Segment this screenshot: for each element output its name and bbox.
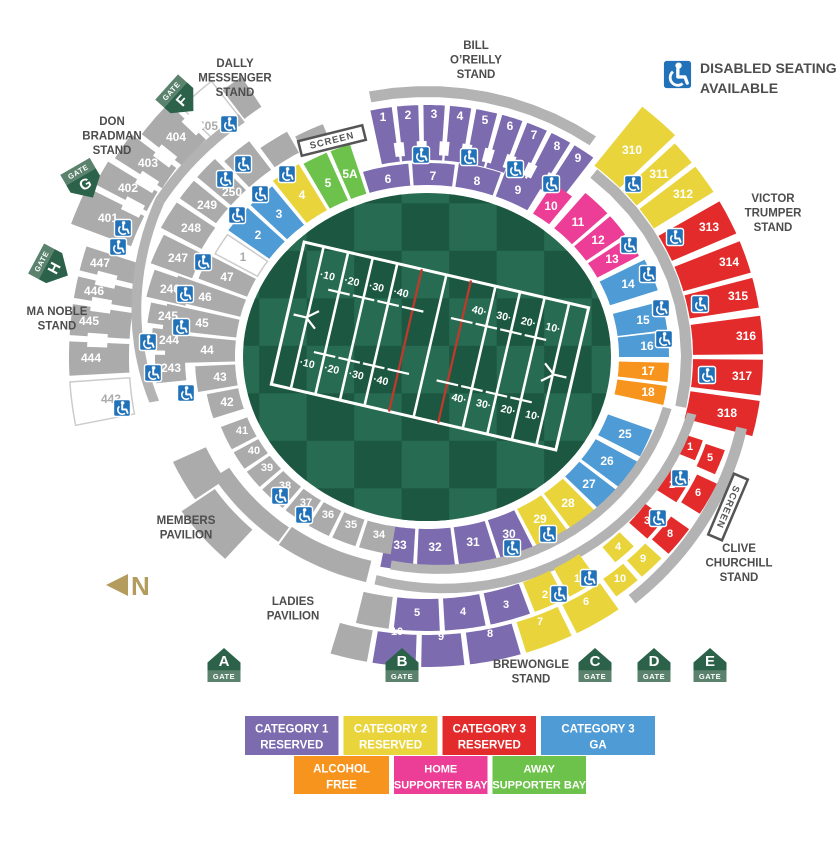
svg-text:2: 2 — [255, 228, 262, 242]
svg-text:9: 9 — [640, 553, 646, 565]
svg-text:43: 43 — [213, 370, 227, 384]
svg-text:16: 16 — [640, 339, 654, 353]
svg-text:444: 444 — [81, 351, 101, 365]
svg-text:14: 14 — [621, 277, 635, 291]
svg-text:9: 9 — [438, 631, 444, 643]
svg-text:CATEGORY 3: CATEGORY 3 — [561, 724, 634, 736]
svg-text:3: 3 — [431, 107, 438, 121]
svg-text:RESERVED: RESERVED — [260, 740, 323, 752]
svg-text:7: 7 — [537, 616, 543, 628]
svg-text:RESERVED: RESERVED — [359, 740, 422, 752]
svg-text:BRADMAN: BRADMAN — [82, 131, 141, 143]
svg-text:B: B — [397, 653, 408, 670]
svg-text:2: 2 — [405, 108, 412, 122]
svg-text:12: 12 — [591, 233, 605, 247]
svg-text:315: 315 — [728, 289, 748, 303]
svg-text:MESSENGER: MESSENGER — [198, 73, 272, 85]
svg-text:317: 317 — [732, 369, 752, 383]
svg-text:31: 31 — [466, 535, 480, 549]
svg-text:313: 313 — [699, 220, 719, 234]
svg-text:GATE: GATE — [391, 672, 413, 681]
svg-text:310: 310 — [622, 143, 642, 157]
svg-text:N: N — [131, 571, 150, 601]
svg-text:STAND: STAND — [512, 674, 551, 686]
svg-text:PAVILION: PAVILION — [267, 611, 320, 623]
svg-text:3: 3 — [276, 207, 283, 221]
svg-text:13: 13 — [605, 252, 619, 266]
svg-text:BREWONGLE: BREWONGLE — [493, 659, 569, 671]
svg-text:GATE: GATE — [584, 672, 606, 681]
svg-text:15: 15 — [636, 313, 650, 327]
svg-text:BILL: BILL — [463, 40, 489, 52]
svg-text:27: 27 — [582, 477, 596, 491]
svg-text:314: 314 — [719, 255, 739, 269]
svg-text:316: 316 — [736, 329, 756, 343]
svg-text:6: 6 — [507, 119, 514, 133]
svg-text:4: 4 — [615, 541, 622, 553]
svg-text:SUPPORTER BAY: SUPPORTER BAY — [492, 780, 586, 792]
svg-text:TRUMPER: TRUMPER — [745, 208, 803, 220]
svg-text:GATE: GATE — [643, 672, 665, 681]
svg-text:AWAY: AWAY — [524, 764, 556, 776]
svg-text:8: 8 — [554, 139, 561, 153]
svg-text:39: 39 — [261, 462, 273, 474]
svg-text:CATEGORY 3: CATEGORY 3 — [453, 724, 526, 736]
svg-text:32: 32 — [428, 540, 442, 554]
svg-text:312: 312 — [673, 187, 693, 201]
svg-text:41: 41 — [236, 425, 248, 437]
svg-text:446: 446 — [84, 284, 104, 298]
svg-text:311: 311 — [649, 167, 669, 181]
svg-text:6: 6 — [385, 172, 392, 186]
svg-text:5A: 5A — [342, 167, 358, 181]
svg-text:ALCOHOL: ALCOHOL — [313, 764, 370, 776]
svg-text:4: 4 — [460, 606, 467, 618]
svg-text:RESERVED: RESERVED — [458, 740, 521, 752]
svg-text:HOME: HOME — [424, 764, 457, 776]
svg-text:4: 4 — [457, 109, 464, 123]
svg-text:GATE: GATE — [213, 672, 235, 681]
svg-text:40: 40 — [248, 445, 260, 457]
svg-text:LADIES: LADIES — [272, 596, 315, 608]
svg-text:18: 18 — [641, 385, 655, 399]
svg-text:8: 8 — [487, 628, 493, 640]
svg-text:45: 45 — [195, 316, 209, 330]
svg-text:CLIVE: CLIVE — [722, 543, 756, 555]
svg-text:9: 9 — [575, 151, 582, 165]
svg-text:402: 402 — [118, 181, 138, 195]
svg-text:MEMBERS: MEMBERS — [157, 515, 216, 527]
svg-text:44: 44 — [200, 343, 214, 357]
svg-text:10: 10 — [544, 199, 558, 213]
svg-text:1: 1 — [240, 250, 247, 264]
svg-text:46: 46 — [198, 290, 212, 304]
svg-text:C: C — [590, 653, 601, 670]
svg-text:2: 2 — [542, 589, 548, 601]
svg-text:GA: GA — [589, 740, 606, 752]
svg-text:47: 47 — [220, 270, 234, 284]
svg-text:DALLY: DALLY — [216, 58, 254, 70]
svg-text:STAND: STAND — [216, 87, 255, 99]
svg-text:1: 1 — [380, 110, 387, 124]
svg-text:AVAILABLE: AVAILABLE — [700, 80, 778, 96]
svg-text:10: 10 — [391, 626, 403, 638]
svg-text:FREE: FREE — [326, 780, 357, 792]
svg-text:247: 247 — [168, 251, 188, 265]
svg-text:3: 3 — [503, 599, 509, 611]
svg-text:STAND: STAND — [754, 222, 793, 234]
svg-text:A: A — [219, 653, 230, 670]
svg-text:CATEGORY 2: CATEGORY 2 — [354, 724, 427, 736]
svg-text:6: 6 — [695, 487, 701, 499]
svg-text:CATEGORY 1: CATEGORY 1 — [255, 724, 329, 736]
svg-text:STAND: STAND — [93, 145, 132, 157]
svg-text:5: 5 — [482, 113, 489, 127]
svg-text:VICTOR: VICTOR — [751, 193, 795, 205]
svg-text:248: 248 — [181, 221, 201, 235]
svg-text:5: 5 — [707, 452, 713, 464]
svg-text:O’REILLY: O’REILLY — [450, 55, 502, 67]
svg-text:29: 29 — [533, 512, 547, 526]
svg-text:447: 447 — [90, 256, 110, 270]
svg-text:STAND: STAND — [38, 321, 77, 333]
svg-text:8: 8 — [667, 528, 673, 540]
svg-text:E: E — [705, 653, 715, 670]
svg-text:318: 318 — [717, 406, 737, 420]
svg-text:6: 6 — [583, 596, 589, 608]
svg-text:STAND: STAND — [457, 69, 496, 81]
svg-text:403: 403 — [138, 156, 158, 170]
svg-text:404: 404 — [166, 130, 186, 144]
svg-text:SUPPORTER BAY: SUPPORTER BAY — [394, 780, 488, 792]
svg-text:1: 1 — [687, 441, 693, 453]
svg-text:5: 5 — [325, 176, 332, 190]
svg-text:D: D — [649, 653, 660, 670]
svg-text:42: 42 — [220, 395, 234, 409]
svg-text:36: 36 — [322, 509, 334, 521]
svg-text:9: 9 — [515, 183, 522, 197]
svg-text:GATE: GATE — [699, 672, 721, 681]
svg-text:5: 5 — [414, 607, 420, 619]
svg-text:17: 17 — [641, 364, 655, 378]
svg-text:DON: DON — [99, 116, 125, 128]
svg-text:34: 34 — [373, 529, 386, 541]
svg-text:25: 25 — [618, 427, 632, 441]
svg-text:249: 249 — [197, 198, 217, 212]
svg-text:8: 8 — [474, 174, 481, 188]
svg-text:28: 28 — [561, 496, 575, 510]
svg-text:MA NOBLE: MA NOBLE — [27, 306, 88, 318]
svg-text:7: 7 — [531, 128, 538, 142]
svg-text:7: 7 — [430, 169, 437, 183]
svg-text:1: 1 — [574, 573, 580, 585]
svg-text:STAND: STAND — [720, 572, 759, 584]
svg-text:4: 4 — [299, 188, 306, 202]
svg-text:CHURCHILL: CHURCHILL — [705, 558, 772, 570]
svg-text:33: 33 — [393, 538, 407, 552]
svg-text:35: 35 — [345, 519, 357, 531]
svg-text:DISABLED SEATING: DISABLED SEATING — [700, 60, 837, 76]
svg-text:26: 26 — [600, 454, 614, 468]
svg-text:10: 10 — [614, 573, 626, 585]
svg-text:243: 243 — [161, 361, 181, 375]
svg-text:PAVILION: PAVILION — [160, 530, 213, 542]
svg-text:11: 11 — [572, 215, 585, 229]
